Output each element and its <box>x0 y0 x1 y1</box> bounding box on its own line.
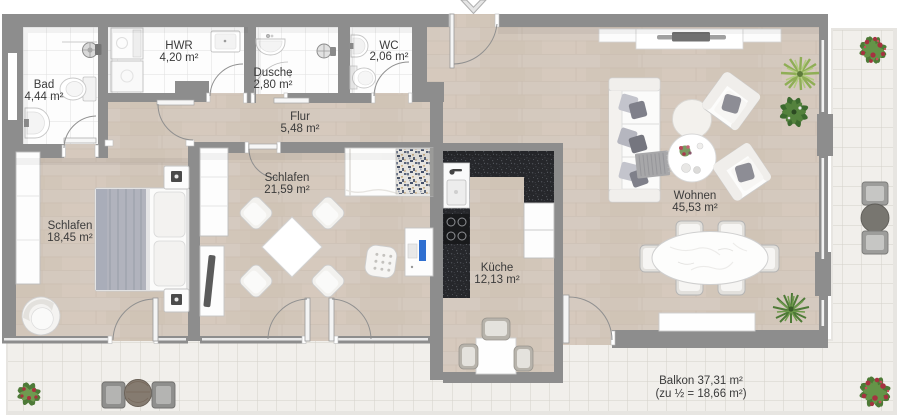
svg-text:Bad: Bad <box>34 79 54 91</box>
svg-text:4,20 m²: 4,20 m² <box>160 52 199 64</box>
svg-text:2,80 m²: 2,80 m² <box>254 79 293 91</box>
svg-text:2,06 m²: 2,06 m² <box>370 51 409 63</box>
svg-text:HWR: HWR <box>165 40 192 52</box>
svg-text:12,13 m²: 12,13 m² <box>474 274 520 286</box>
svg-text:Schlafen: Schlafen <box>48 220 93 232</box>
svg-text:5,48 m²: 5,48 m² <box>281 123 320 135</box>
svg-text:Balkon 37,31 m²: Balkon 37,31 m² <box>659 375 743 387</box>
svg-text:Küche: Küche <box>481 262 514 274</box>
svg-text:Schlafen: Schlafen <box>265 172 310 184</box>
svg-text:18,45 m²: 18,45 m² <box>47 232 93 244</box>
svg-text:Dusche: Dusche <box>254 67 293 79</box>
svg-text:45,53 m²: 45,53 m² <box>672 202 718 214</box>
svg-text:Wohnen: Wohnen <box>674 190 717 202</box>
svg-text:Flur: Flur <box>290 111 310 123</box>
svg-text:(zu ½ = 18,66 m²): (zu ½ = 18,66 m²) <box>655 388 746 400</box>
svg-text:4,44 m²: 4,44 m² <box>25 91 64 103</box>
svg-text:21,59 m²: 21,59 m² <box>264 184 310 196</box>
